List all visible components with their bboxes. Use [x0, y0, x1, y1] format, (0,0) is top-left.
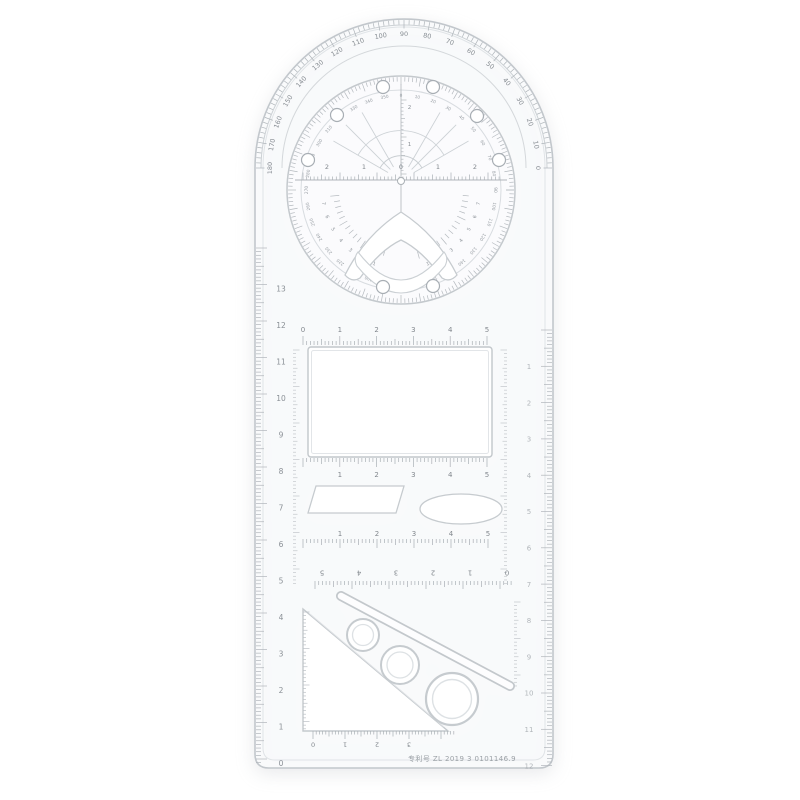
circle-cutout-small — [347, 619, 379, 651]
svg-text:2: 2 — [375, 530, 379, 538]
svg-text:0: 0 — [279, 759, 284, 768]
svg-text:10: 10 — [525, 690, 534, 698]
svg-text:1: 1 — [436, 163, 440, 171]
geometric-ruler-photo: 0102030405060708090100110120130140150160… — [0, 0, 800, 800]
svg-text:3: 3 — [411, 471, 415, 479]
svg-text:4: 4 — [449, 530, 454, 538]
svg-text:5: 5 — [279, 577, 284, 586]
svg-text:1: 1 — [362, 163, 366, 171]
svg-text:10: 10 — [531, 140, 540, 150]
svg-text:90: 90 — [400, 30, 408, 38]
svg-text:4: 4 — [279, 613, 284, 622]
svg-text:2: 2 — [374, 326, 378, 334]
svg-text:3: 3 — [279, 650, 284, 659]
svg-text:270: 270 — [304, 186, 310, 194]
svg-text:2: 2 — [375, 741, 379, 749]
svg-text:11: 11 — [276, 358, 286, 367]
svg-text:4: 4 — [448, 326, 453, 334]
svg-text:2: 2 — [279, 686, 284, 695]
svg-text:13: 13 — [276, 285, 286, 294]
svg-text:9: 9 — [279, 431, 284, 440]
svg-text:1: 1 — [338, 530, 342, 538]
parallelogram-cutout — [308, 486, 404, 513]
svg-text:5: 5 — [485, 326, 489, 334]
svg-text:10: 10 — [276, 394, 286, 403]
svg-text:180: 180 — [266, 162, 274, 174]
svg-text:0: 0 — [505, 568, 509, 576]
svg-text:0: 0 — [311, 741, 315, 749]
svg-text:12: 12 — [276, 321, 286, 330]
rectangle-cutout — [308, 347, 492, 457]
svg-text:7: 7 — [527, 581, 531, 589]
svg-text:8: 8 — [527, 617, 531, 625]
svg-text:1: 1 — [527, 363, 531, 371]
svg-text:1: 1 — [279, 723, 284, 732]
svg-text:1: 1 — [338, 326, 342, 334]
disc-center-hole — [398, 178, 405, 185]
svg-text:3: 3 — [527, 436, 531, 444]
svg-text:2: 2 — [408, 105, 412, 111]
svg-text:0: 0 — [534, 166, 542, 170]
svg-text:3: 3 — [411, 326, 415, 334]
svg-text:5: 5 — [486, 530, 490, 538]
svg-text:6: 6 — [527, 545, 532, 553]
svg-text:2: 2 — [527, 399, 531, 407]
svg-text:3: 3 — [407, 741, 411, 749]
svg-text:1: 1 — [408, 142, 412, 148]
circle-cutout-large — [426, 673, 478, 725]
svg-text:5: 5 — [320, 568, 324, 576]
svg-text:4: 4 — [356, 568, 361, 576]
svg-text:3: 3 — [412, 530, 416, 538]
patent-number: 专利号 ZL 2019 3 0101146.9 — [408, 754, 516, 763]
svg-text:80: 80 — [422, 31, 432, 40]
svg-text:0: 0 — [399, 163, 403, 171]
svg-text:2: 2 — [473, 163, 477, 171]
svg-text:12: 12 — [525, 762, 534, 770]
svg-text:5: 5 — [527, 508, 531, 516]
svg-text:1: 1 — [343, 741, 347, 749]
svg-text:8: 8 — [279, 467, 284, 476]
svg-text:11: 11 — [525, 726, 534, 734]
svg-text:4: 4 — [527, 472, 532, 480]
svg-text:6: 6 — [279, 540, 284, 549]
svg-text:0: 0 — [301, 326, 305, 334]
svg-text:5: 5 — [485, 471, 489, 479]
svg-text:1: 1 — [468, 568, 472, 576]
svg-text:2: 2 — [431, 568, 435, 576]
svg-text:1: 1 — [338, 471, 342, 479]
svg-text:9: 9 — [527, 653, 531, 661]
svg-text:2: 2 — [374, 471, 378, 479]
svg-text:2: 2 — [325, 163, 329, 171]
svg-text:90: 90 — [492, 187, 498, 193]
svg-text:3: 3 — [394, 568, 398, 576]
ellipse-cutout — [420, 494, 502, 524]
svg-text:4: 4 — [448, 471, 453, 479]
svg-text:7: 7 — [279, 504, 284, 513]
photo-canvas: 0102030405060708090100110120130140150160… — [0, 0, 800, 800]
